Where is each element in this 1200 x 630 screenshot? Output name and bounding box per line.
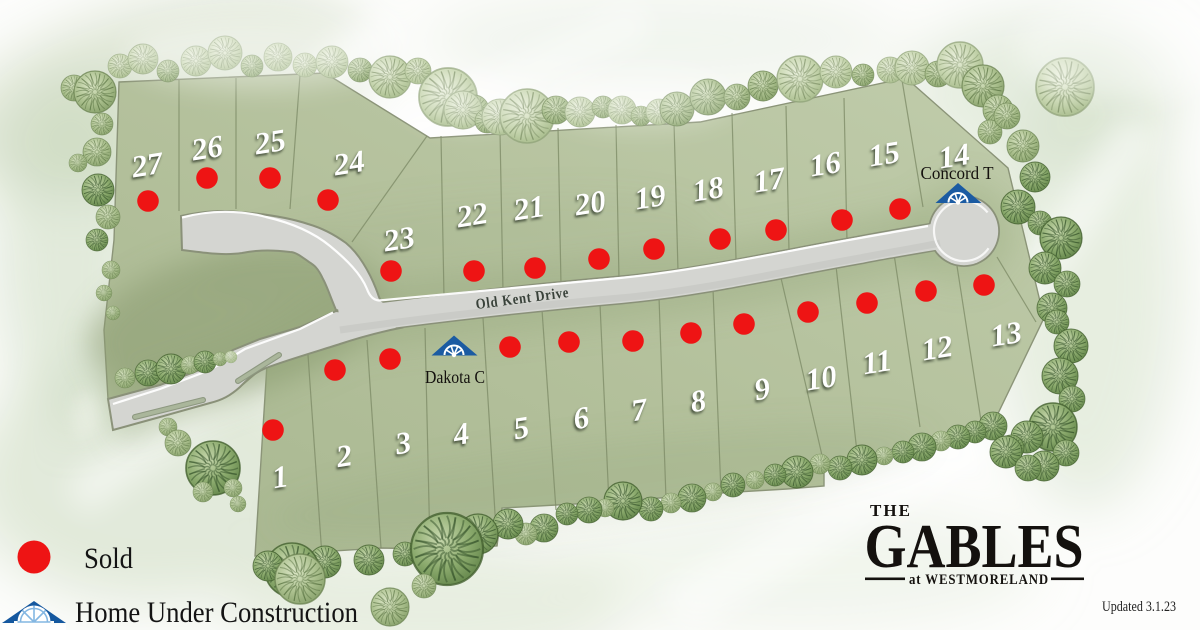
svg-text:19: 19 [632, 177, 668, 216]
svg-text:22: 22 [453, 195, 490, 235]
svg-text:13: 13 [988, 314, 1024, 353]
svg-text:23: 23 [380, 219, 417, 259]
svg-text:GABLES: GABLES [865, 513, 1084, 581]
svg-text:20: 20 [571, 183, 608, 223]
svg-text:25: 25 [251, 122, 288, 162]
svg-text:Sold: Sold [84, 542, 133, 575]
svg-text:at WESTMORELAND: at WESTMORELAND [909, 572, 1049, 588]
svg-text:16: 16 [807, 144, 844, 183]
svg-text:12: 12 [919, 328, 955, 367]
svg-text:15: 15 [866, 134, 902, 173]
svg-text:18: 18 [690, 169, 727, 208]
svg-text:Updated 3.1.23: Updated 3.1.23 [1102, 599, 1176, 615]
svg-text:Concord T: Concord T [921, 163, 994, 183]
svg-text:Home Under Construction: Home Under Construction [75, 597, 358, 629]
svg-text:24: 24 [330, 143, 367, 183]
svg-text:10: 10 [803, 358, 839, 397]
svg-text:11: 11 [860, 342, 894, 381]
svg-text:21: 21 [510, 188, 547, 228]
svg-text:26: 26 [188, 128, 226, 168]
svg-text:Dakota C: Dakota C [425, 367, 485, 387]
